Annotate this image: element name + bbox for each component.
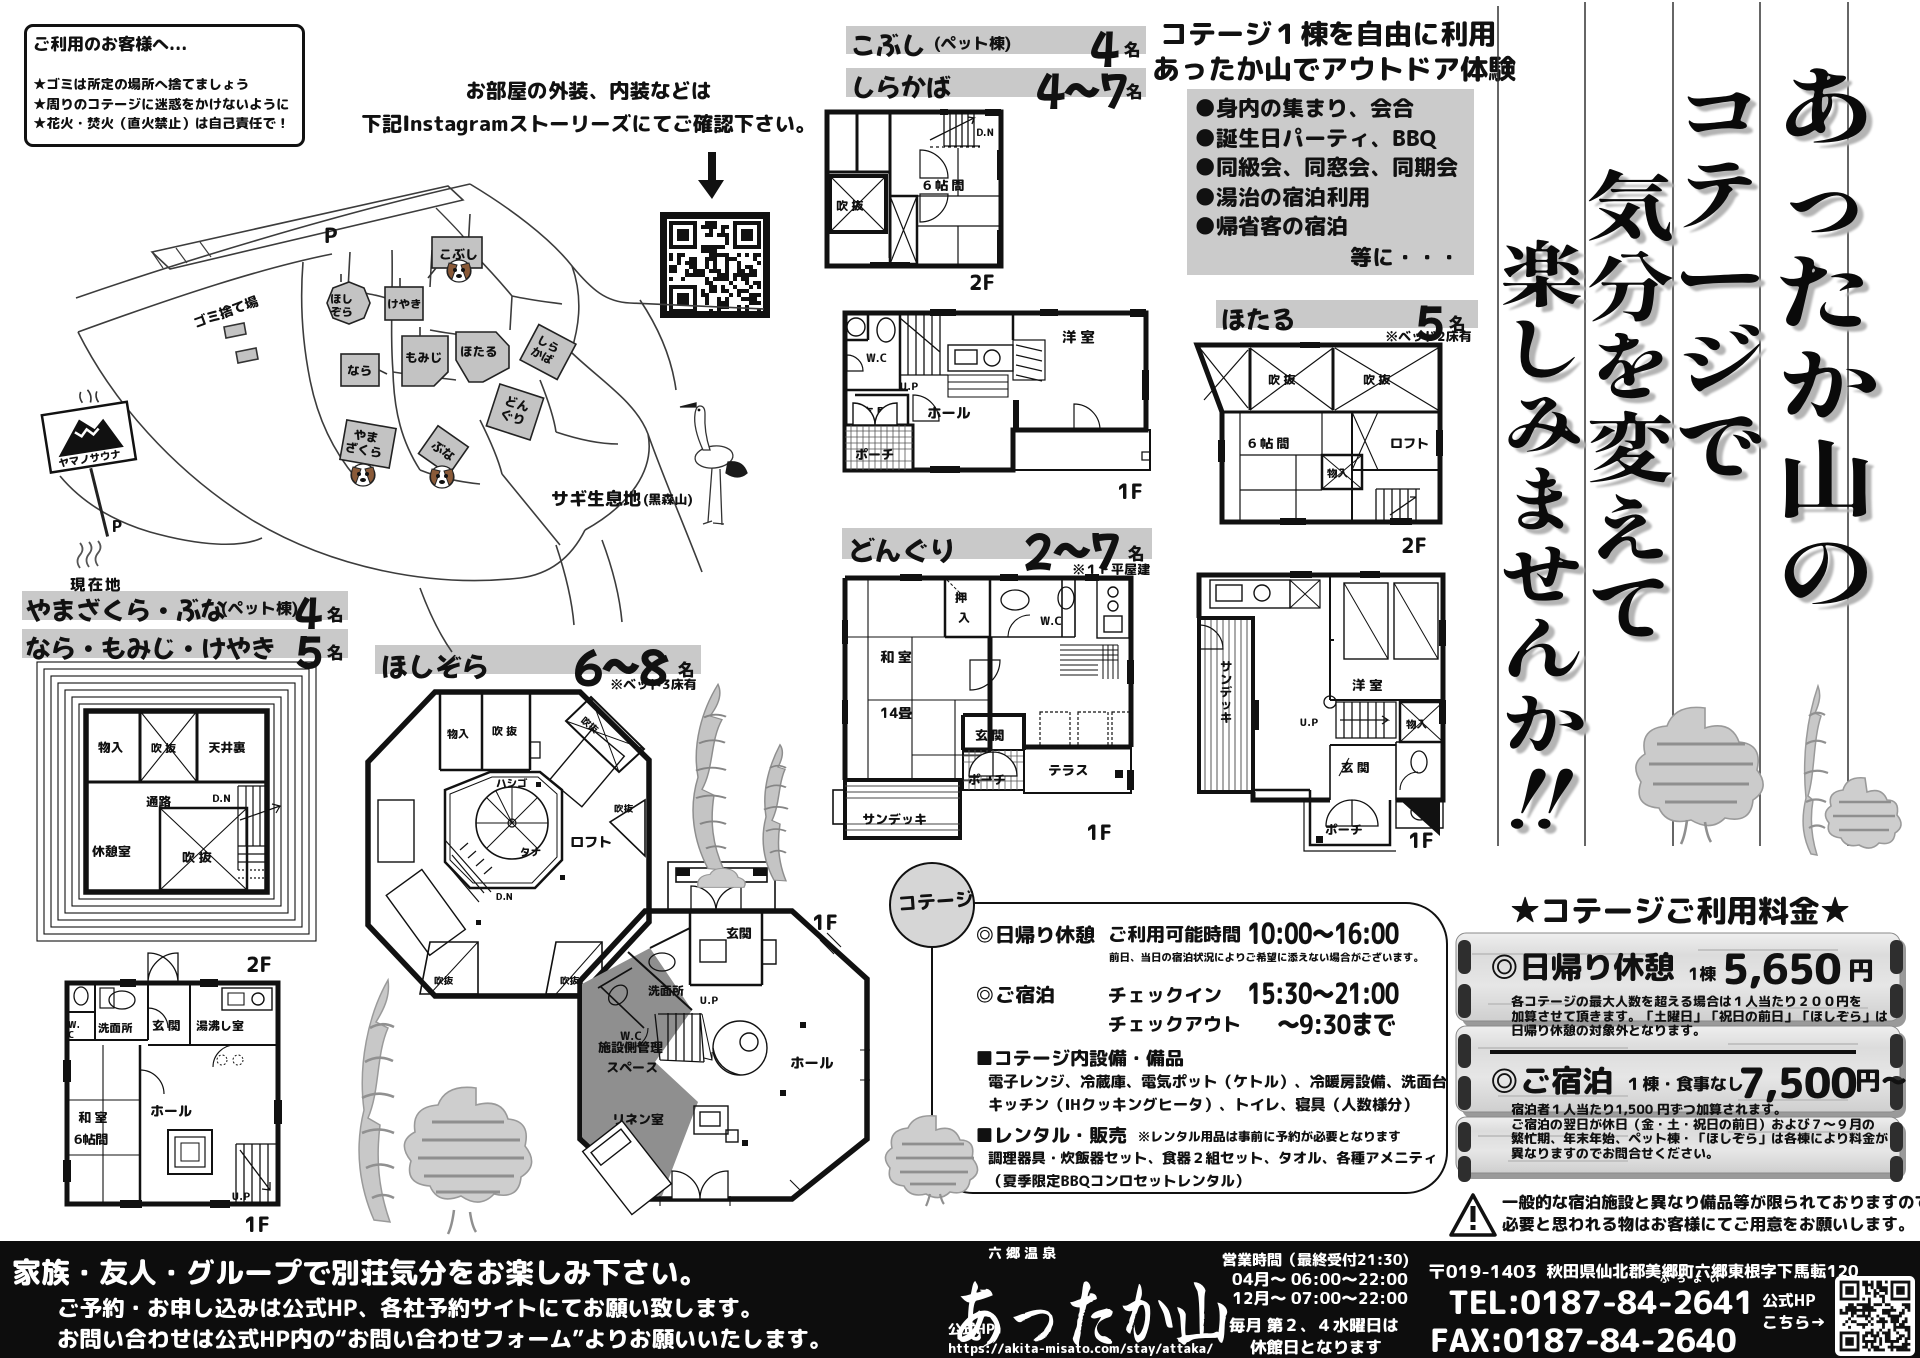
svg-text:吹 抜: 吹 抜 [182,849,212,867]
svg-text:物入: 物入 [98,739,124,756]
svg-text:吹 抜: 吹 抜 [151,740,176,756]
svg-text:吹 抜: 吹 抜 [1363,371,1390,388]
svg-text:吹 抜: 吹 抜 [1268,371,1295,388]
svg-text:玄 関: 玄 関 [975,727,1005,745]
svg-text:洋 室: 洋 室 [1352,676,1383,695]
svg-text:湯沸し室: 湯沸し室 [196,1017,244,1034]
svg-text:押: 押 [955,589,967,606]
svg-text:洋 室: 洋 室 [1062,326,1095,347]
svg-text:P: P [324,220,338,250]
svg-text:ポーチ: ポーチ [1325,821,1363,838]
svg-text:2F: 2F [1401,530,1427,560]
svg-text:スペース: スペース [606,1059,658,1077]
svg-text:U.P: U.P [900,380,918,394]
svg-text:6 帖 間: 6 帖 間 [923,177,965,195]
svg-text:1F: 1F [1117,476,1143,506]
svg-text:D.N: D.N [496,891,513,904]
svg-text:6 帖 間: 6 帖 間 [1248,435,1290,453]
svg-text:U.P: U.P [232,1190,250,1204]
svg-text:物入: 物入 [447,726,469,742]
svg-text:(黒森山): (黒森山) [643,491,693,509]
svg-text:吹抜: 吹抜 [614,803,633,816]
svg-text:U.P: U.P [1300,716,1318,730]
svg-text:P: P [112,516,122,538]
svg-text:天井裏: 天井裏 [208,739,246,756]
svg-text:けやき: けやき [387,296,422,312]
svg-text:1F: 1F [1408,825,1434,855]
svg-text:タナ: タナ [520,846,541,860]
svg-text:玄 関: 玄 関 [1341,759,1370,776]
svg-text:サンデッキ: サンデッキ [862,811,927,829]
svg-text:ぞら: ぞら [330,304,353,320]
svg-text:14畳: 14畳 [880,704,912,723]
svg-text:ホール: ホール [150,1102,192,1121]
svg-text:2F: 2F [969,267,995,297]
svg-text:物入: 物入 [1327,467,1349,481]
svg-text:サギ生息地: サギ生息地 [551,486,641,511]
svg-text:ポーチ: ポーチ [968,771,1006,788]
svg-text:ポーチ: ポーチ [855,446,894,464]
svg-text:休憩室: 休憩室 [92,843,131,861]
svg-text:1F: 1F [1086,817,1112,847]
svg-text:なら: なら [347,362,372,379]
svg-text:サンデッキ: サンデッキ [1218,660,1235,723]
svg-text:1F: 1F [812,907,838,937]
svg-text:物入: 物入 [1406,718,1428,732]
svg-text:W.C: W.C [866,350,887,366]
svg-text:D.N: D.N [212,792,231,806]
svg-text:和 室: 和 室 [880,648,912,667]
svg-text:1F: 1F [244,1209,270,1239]
svg-text:D.N: D.N [976,126,994,140]
svg-text:吹 抜: 吹 抜 [492,723,517,739]
svg-text:吹 抜: 吹 抜 [836,197,863,214]
svg-text:ほたる: ほたる [460,343,498,360]
svg-text:テラス: テラス [1048,761,1089,780]
svg-text:W.C: W.C [620,1028,642,1044]
svg-text:W.C: W.C [1040,613,1062,629]
svg-text:6帖間: 6帖間 [74,1131,108,1149]
svg-text:入: 入 [958,609,970,626]
svg-text:和 室: 和 室 [78,1109,108,1127]
svg-text:ホール: ホール [790,1052,834,1073]
svg-text:もみじ: もみじ [405,349,443,366]
svg-text:ロフト: ロフト [570,833,612,852]
svg-text:洗面所: 洗面所 [98,1020,133,1036]
svg-text:C: C [68,1029,74,1042]
svg-text:洗面所: 洗面所 [648,982,684,999]
svg-text:ロフト: ロフト [1390,435,1429,453]
svg-text:現在地: 現在地 [70,573,123,595]
